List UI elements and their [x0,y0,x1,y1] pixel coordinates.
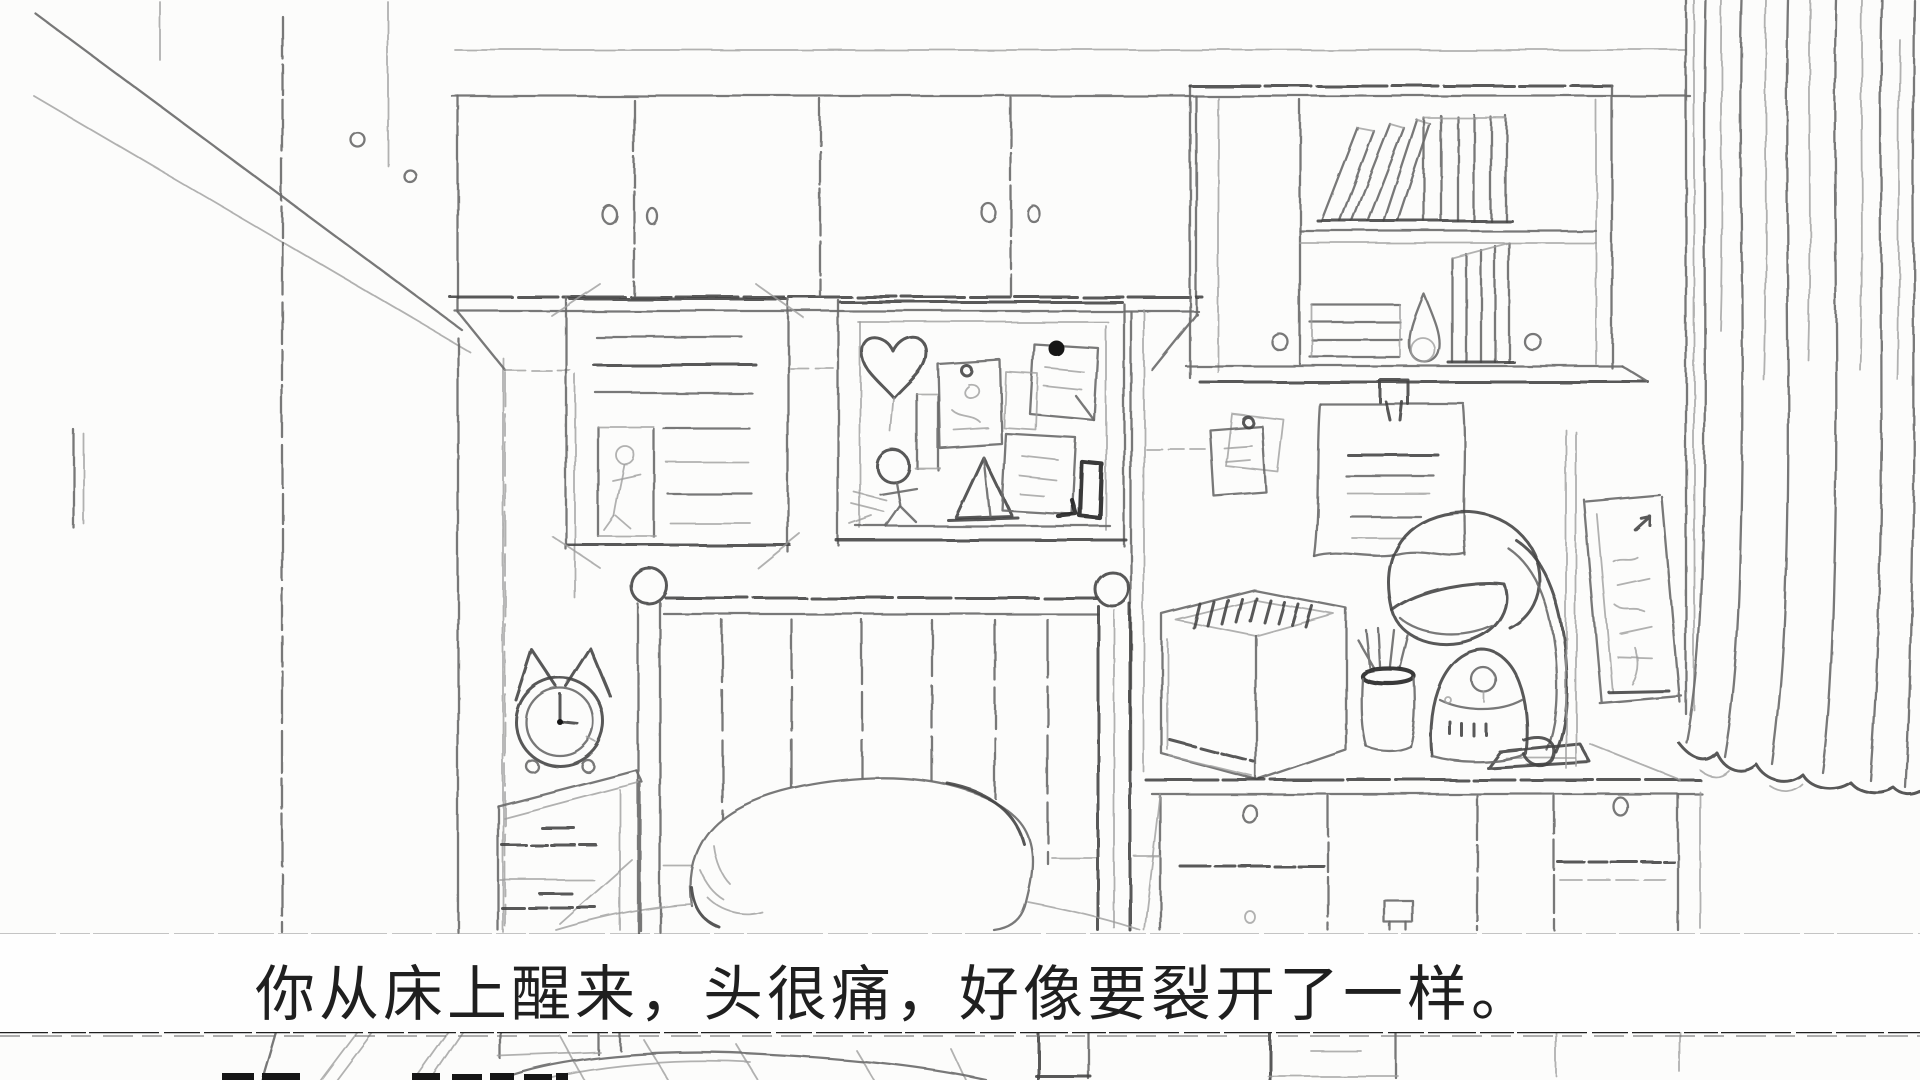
pinned-papers [1146,380,1466,556]
desk-with-drawers [1144,430,1702,930]
pillow [556,778,1140,930]
dialogue-box[interactable]: 你从床上醒来，头很痛，好像要裂开了一样。 [0,934,1920,1032]
nightstand [498,770,642,930]
wall-bookshelf [1186,86,1648,382]
cat-ear-alarm-clock [516,648,610,772]
corkboard [836,300,1126,546]
file-organizer [1162,590,1346,780]
wall-poster [1582,493,1682,709]
wall-corner [1686,0,1694,714]
visual-novel-screen: 你从床上醒来，头很痛，好像要裂开了一样。 [0,0,1920,1080]
curtain [1678,0,1920,795]
dialogue-text: 你从床上醒来，头很痛，好像要裂开了一样。 [255,946,1535,1033]
overhead-cabinets [450,50,1690,928]
wardrobe [34,2,503,932]
pen-cup [1358,628,1415,751]
floorboards [262,1032,1680,1080]
room-sketch [0,0,1920,1080]
taped-poster [552,284,804,568]
desk-lamp [1389,512,1590,768]
